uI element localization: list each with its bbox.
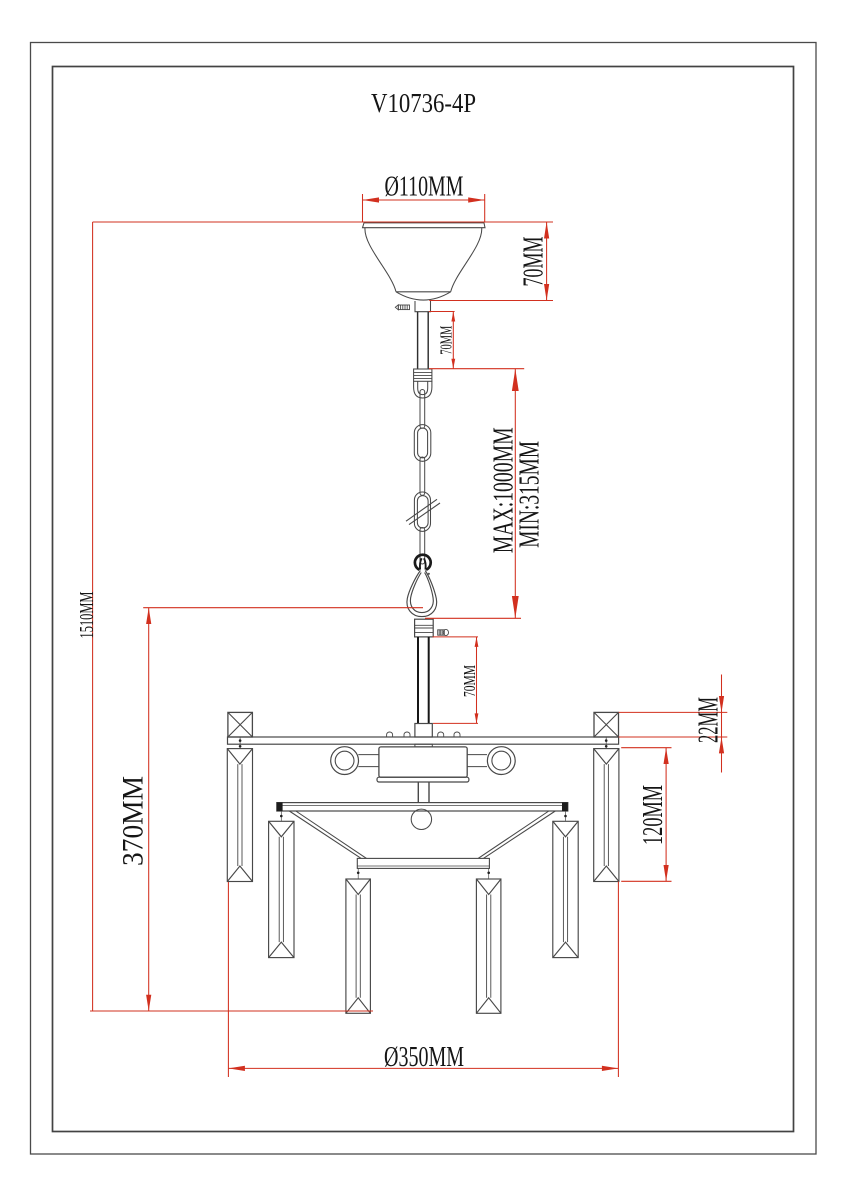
svg-text:370MM: 370MM: [116, 776, 149, 866]
svg-text:V10736-4P: V10736-4P: [371, 89, 476, 118]
svg-text:MIN:315MM: MIN:315MM: [514, 441, 546, 548]
svg-text:22MM: 22MM: [693, 697, 725, 743]
svg-text:70MM: 70MM: [461, 665, 480, 697]
svg-text:Ø350MM: Ø350MM: [384, 1042, 464, 1073]
svg-text:70MM: 70MM: [437, 325, 456, 354]
svg-text:120MM: 120MM: [637, 785, 669, 845]
svg-text:70MM: 70MM: [518, 237, 549, 287]
svg-text:Ø110MM: Ø110MM: [385, 171, 464, 202]
svg-text:1510MM: 1510MM: [75, 591, 98, 638]
